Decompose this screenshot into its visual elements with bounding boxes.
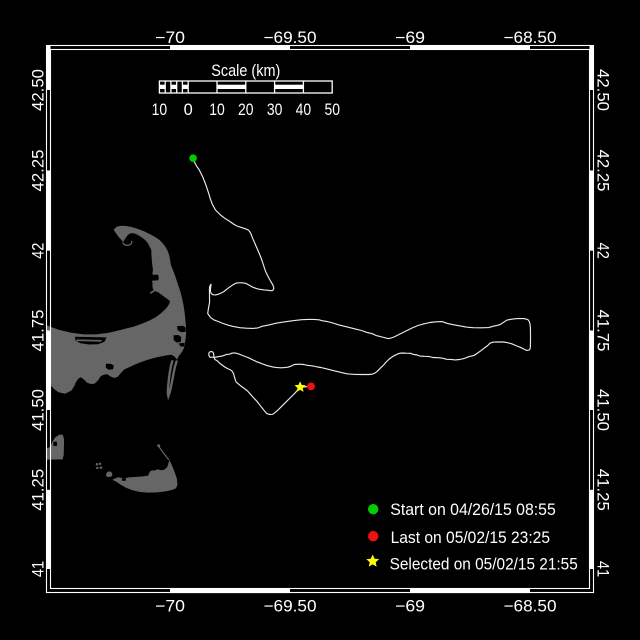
svg-text:42.50: 42.50 bbox=[594, 69, 612, 111]
svg-text:−69: −69 bbox=[395, 598, 425, 616]
svg-text:Scale (km): Scale (km) bbox=[211, 62, 280, 80]
svg-text:41.75: 41.75 bbox=[594, 310, 612, 352]
svg-text:−69.50: −69.50 bbox=[264, 29, 317, 47]
svg-text:−68.50: −68.50 bbox=[504, 598, 557, 616]
svg-text:41.50: 41.50 bbox=[594, 389, 612, 431]
svg-text:41.50: 41.50 bbox=[30, 389, 48, 431]
svg-text:41: 41 bbox=[594, 561, 612, 577]
svg-text:41: 41 bbox=[30, 561, 48, 577]
svg-text:−70: −70 bbox=[155, 29, 185, 47]
svg-text:−70: −70 bbox=[155, 598, 185, 616]
svg-text:42: 42 bbox=[594, 243, 612, 259]
svg-text:10: 10 bbox=[209, 101, 225, 119]
svg-text:Last on 05/02/15 23:25: Last on 05/02/15 23:25 bbox=[391, 529, 550, 547]
svg-text:20: 20 bbox=[238, 101, 254, 119]
svg-text:42.25: 42.25 bbox=[30, 150, 48, 192]
svg-text:50: 50 bbox=[324, 101, 340, 119]
svg-text:−69: −69 bbox=[395, 29, 425, 47]
svg-text:41.25: 41.25 bbox=[594, 469, 612, 511]
svg-text:42: 42 bbox=[30, 243, 48, 259]
svg-text:40: 40 bbox=[296, 101, 312, 119]
svg-text:42.25: 42.25 bbox=[594, 150, 612, 192]
svg-text:0: 0 bbox=[184, 101, 193, 119]
svg-text:−69.50: −69.50 bbox=[264, 598, 317, 616]
svg-text:41.75: 41.75 bbox=[30, 310, 48, 352]
svg-text:−68.50: −68.50 bbox=[504, 29, 557, 47]
svg-text:30: 30 bbox=[267, 101, 283, 119]
svg-text:41.25: 41.25 bbox=[30, 469, 48, 511]
svg-text:42.50: 42.50 bbox=[30, 69, 48, 111]
svg-text:Start on 04/26/15 08:55: Start on 04/26/15 08:55 bbox=[390, 501, 556, 519]
svg-text:10: 10 bbox=[152, 101, 168, 119]
svg-text:Selected on 05/02/15 21:55: Selected on 05/02/15 21:55 bbox=[390, 556, 578, 574]
